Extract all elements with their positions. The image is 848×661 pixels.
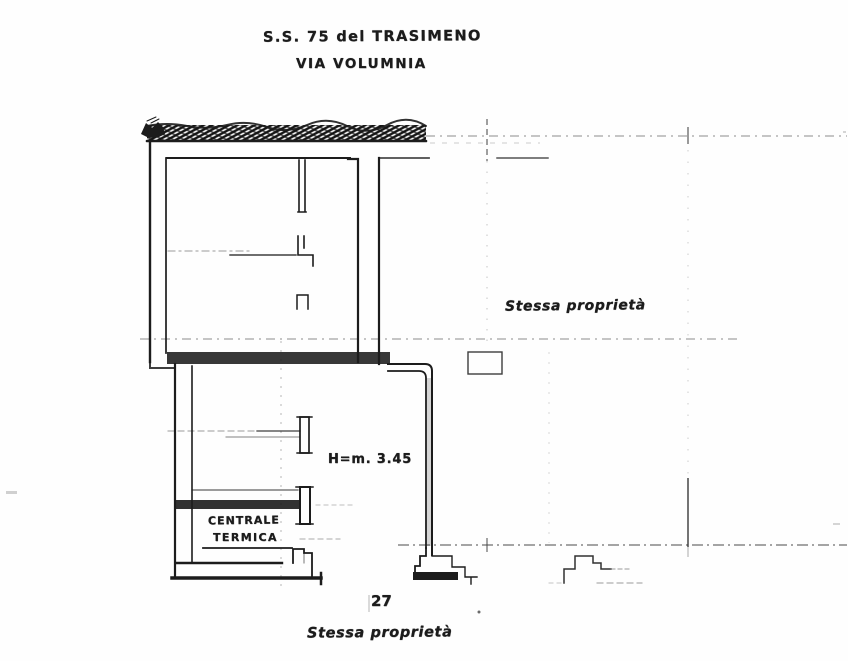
wall-footing: [413, 548, 477, 584]
annotation-same-property-right: Stessa proprietà: [505, 298, 646, 313]
page-number: 27: [371, 594, 392, 609]
annotation-ceiling-height: H=m. 3.45: [328, 453, 412, 466]
street-boundary-hatch: [141, 117, 426, 141]
pier-details: [168, 160, 313, 453]
floor-plan-drawing: [0, 0, 848, 661]
pillar-box: [468, 352, 502, 374]
annotation-same-property-bottom: Stessa proprietà: [307, 625, 453, 641]
stepped-profile: [549, 556, 642, 583]
annotation-street-name: S.S. 75 del TRASIMENO: [263, 29, 482, 45]
room-label-termica: TERMICA: [213, 532, 278, 543]
boiler-room-walls: [172, 364, 352, 584]
floor-plan-page: S.S. 75 del TRASIMENO VIA VOLUMNIA Stess…: [0, 0, 848, 661]
room-label-centrale: CENTRALE: [208, 514, 280, 526]
annotation-via-volumnia: VIA VOLUMNIA: [296, 58, 427, 72]
upper-room-walls: [150, 141, 548, 368]
